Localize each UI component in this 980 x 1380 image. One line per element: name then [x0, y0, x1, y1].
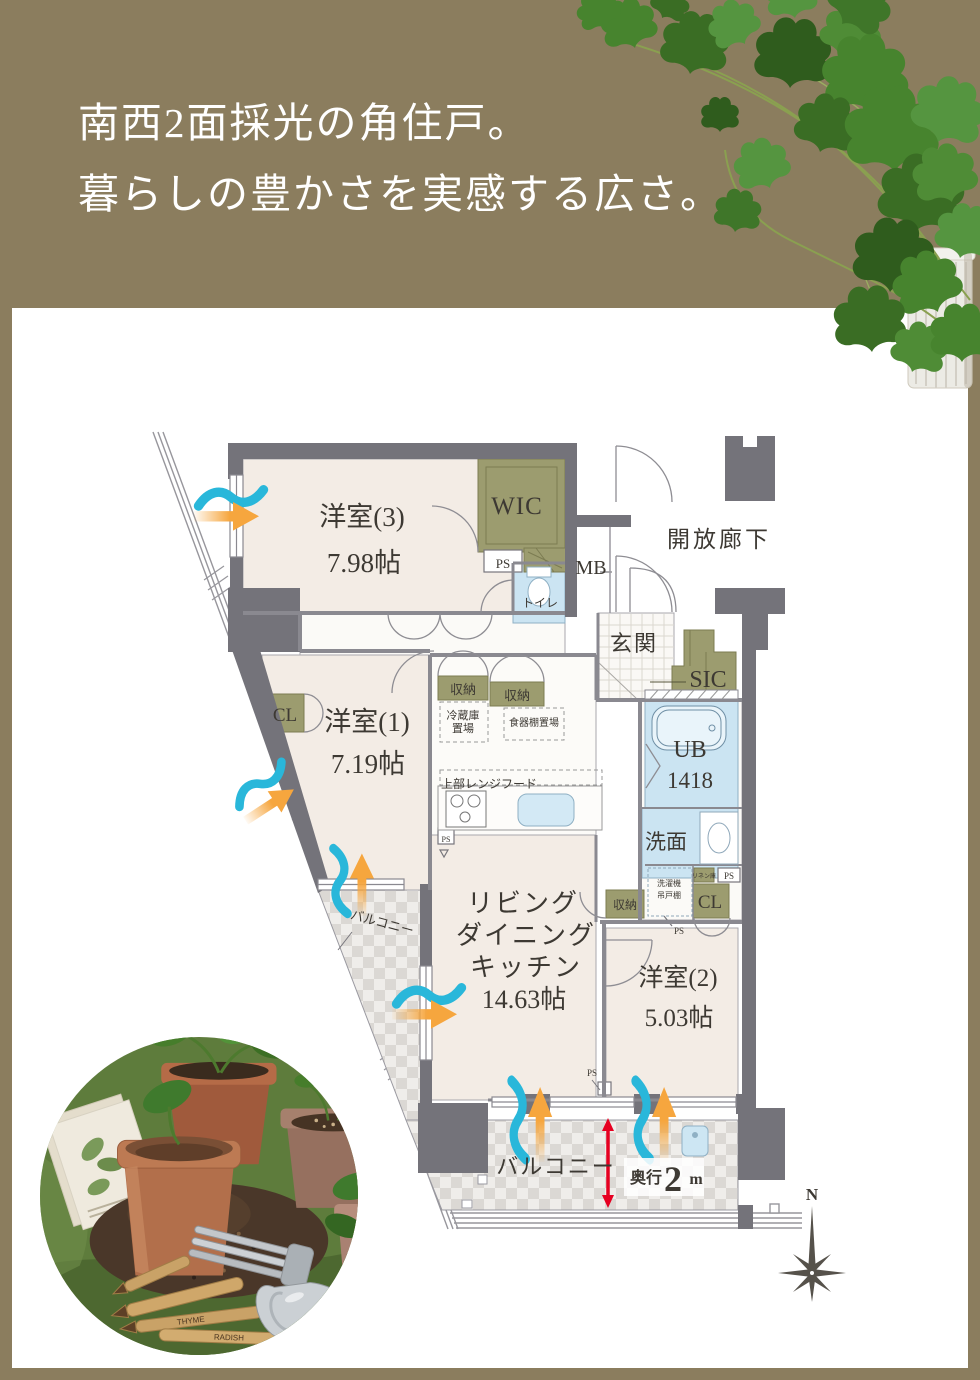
headline-line2: 暮らしの豊かさを実感する広さ。: [78, 159, 723, 230]
headline: 南西2面採光の角住戸。 暮らしの豊かさを実感する広さ。: [78, 88, 723, 229]
gardening-photo: THYMERADISH: [40, 1037, 358, 1355]
headline-line1: 南西2面採光の角住戸。: [78, 88, 723, 159]
marker-text-2: RADISH: [214, 1333, 245, 1343]
header-banner: 南西2面採光の角住戸。 暮らしの豊かさを実感する広さ。: [0, 0, 980, 308]
page: 南西2面採光の角住戸。 暮らしの豊かさを実感する広さ。: [0, 0, 980, 1380]
